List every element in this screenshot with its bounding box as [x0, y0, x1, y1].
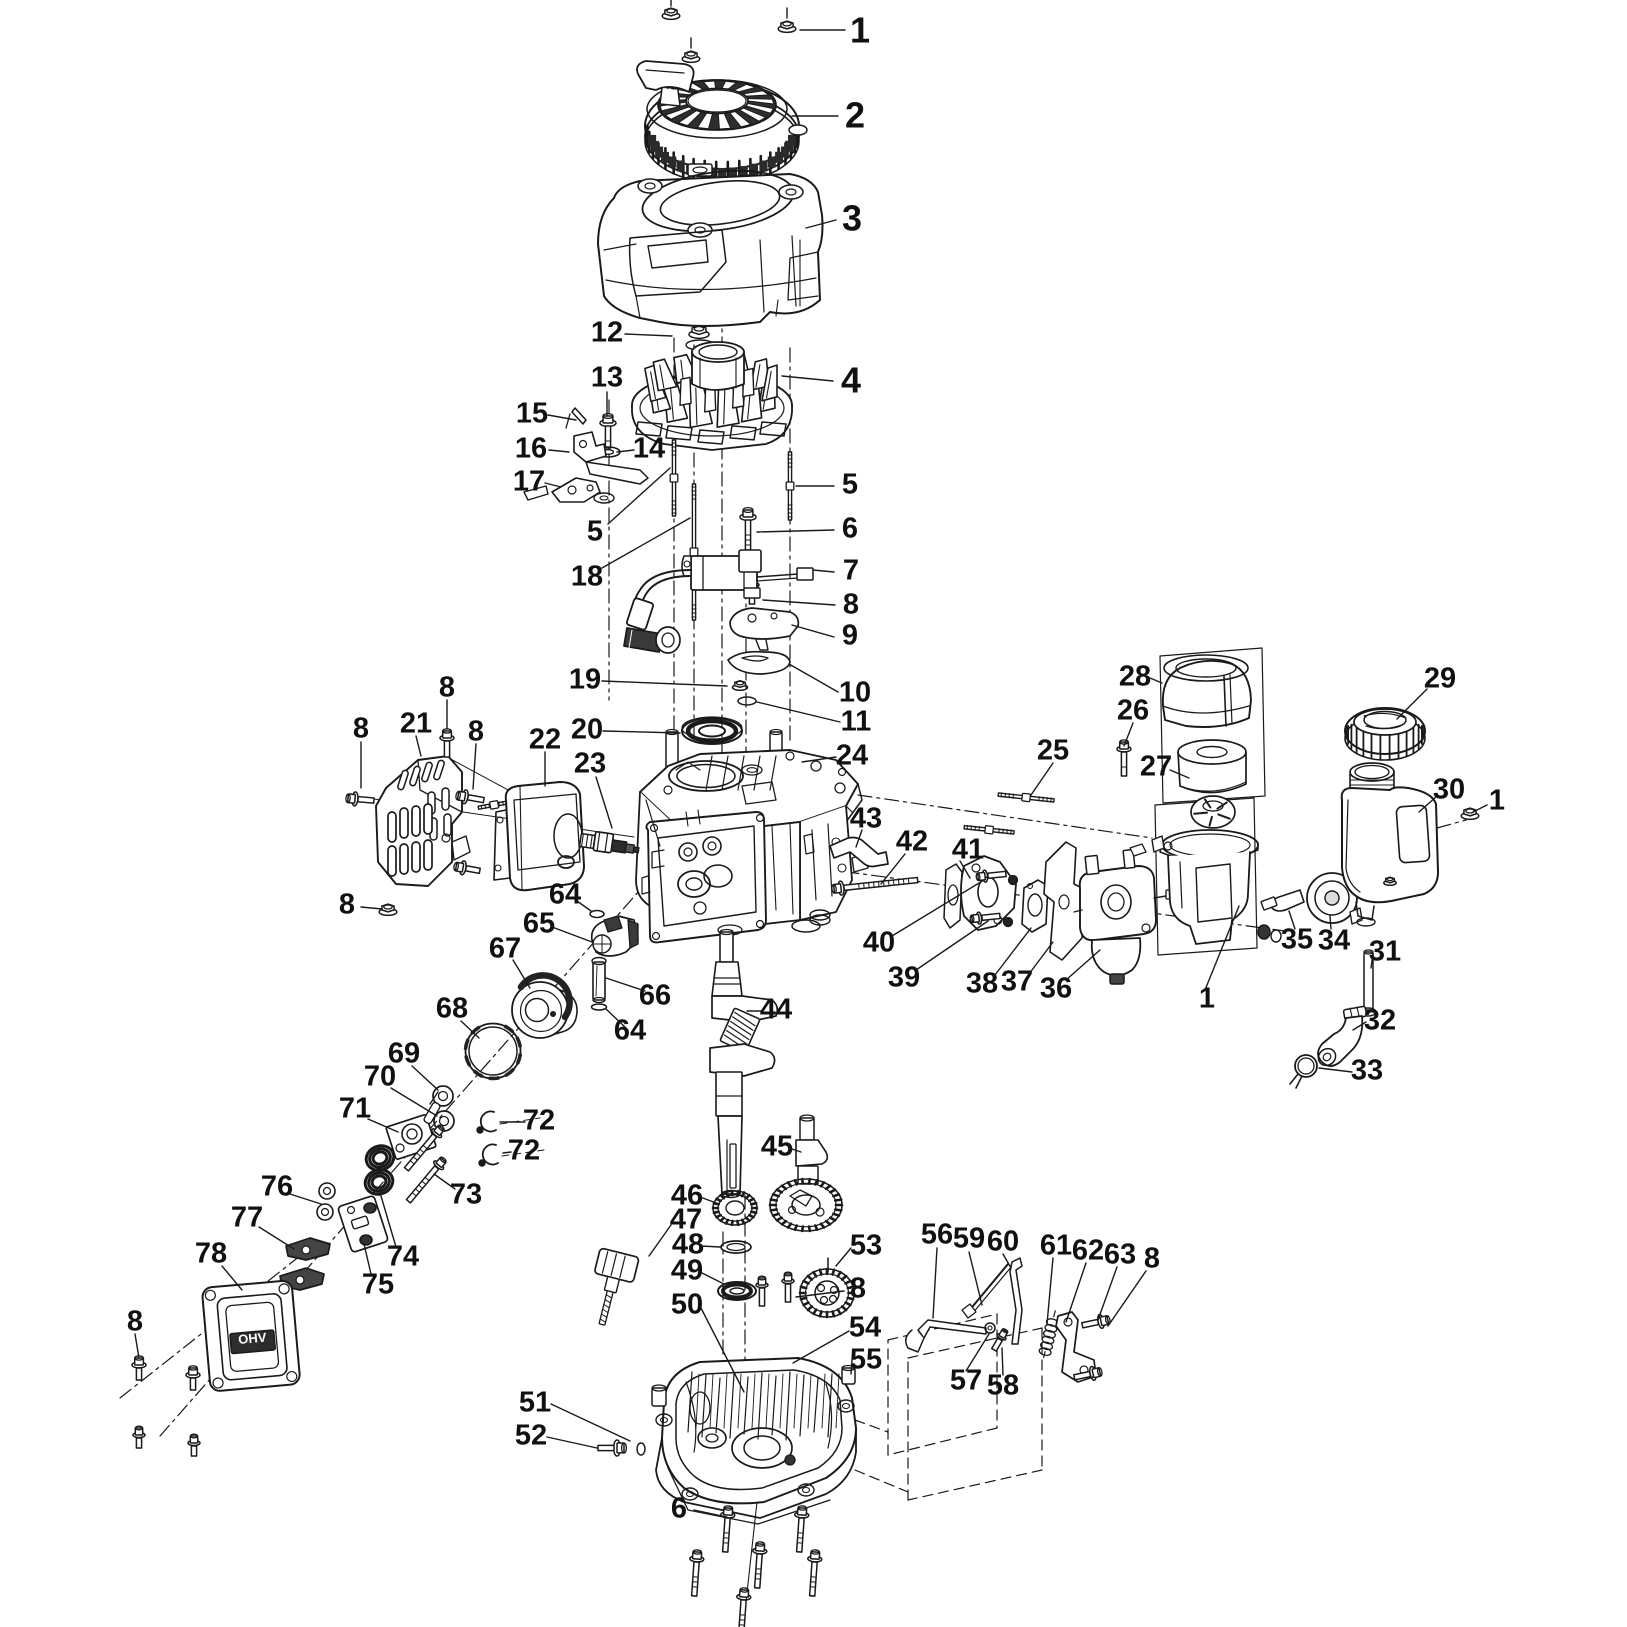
svg-text:35: 35	[1281, 924, 1313, 956]
svg-text:1: 1	[850, 10, 870, 51]
svg-text:25: 25	[1037, 735, 1069, 767]
svg-text:29: 29	[1424, 663, 1456, 695]
svg-text:26: 26	[1117, 695, 1149, 727]
svg-text:38: 38	[966, 968, 998, 1000]
svg-text:68: 68	[436, 993, 468, 1025]
svg-text:8: 8	[439, 672, 455, 704]
svg-text:5: 5	[587, 516, 603, 548]
svg-text:55: 55	[850, 1344, 882, 1376]
svg-text:9: 9	[842, 620, 858, 652]
svg-text:57: 57	[950, 1365, 982, 1397]
svg-text:30: 30	[1433, 774, 1465, 806]
svg-text:28: 28	[1119, 661, 1151, 693]
svg-text:37: 37	[1001, 966, 1033, 998]
svg-text:21: 21	[400, 708, 432, 740]
svg-text:14: 14	[633, 433, 665, 465]
svg-text:19: 19	[569, 664, 601, 696]
svg-text:13: 13	[591, 362, 623, 394]
svg-text:5: 5	[842, 469, 858, 501]
svg-text:65: 65	[523, 908, 555, 940]
svg-text:33: 33	[1351, 1055, 1383, 1087]
svg-text:72: 72	[508, 1135, 540, 1167]
svg-text:24: 24	[836, 740, 868, 772]
svg-text:51: 51	[519, 1387, 551, 1419]
svg-text:11: 11	[841, 706, 872, 738]
svg-text:71: 71	[339, 1093, 371, 1125]
svg-text:2: 2	[845, 95, 865, 136]
svg-text:7: 7	[843, 555, 859, 587]
svg-text:8: 8	[339, 889, 355, 921]
svg-text:15: 15	[516, 398, 548, 430]
svg-text:41: 41	[952, 834, 984, 866]
svg-text:17: 17	[513, 466, 545, 498]
svg-text:40: 40	[863, 927, 895, 959]
svg-text:59: 59	[953, 1223, 985, 1255]
svg-text:6: 6	[842, 513, 858, 545]
svg-text:62: 62	[1072, 1235, 1104, 1267]
svg-text:66: 66	[639, 980, 671, 1012]
svg-text:77: 77	[231, 1202, 263, 1234]
svg-text:52: 52	[515, 1420, 547, 1452]
svg-text:36: 36	[1040, 973, 1072, 1005]
svg-text:45: 45	[761, 1131, 793, 1163]
svg-text:23: 23	[574, 748, 606, 780]
svg-text:6: 6	[671, 1493, 687, 1525]
svg-text:64: 64	[549, 879, 581, 911]
svg-text:16: 16	[515, 433, 547, 465]
svg-text:76: 76	[261, 1171, 293, 1203]
svg-text:32: 32	[1364, 1005, 1396, 1037]
svg-text:8: 8	[353, 713, 369, 745]
svg-text:8: 8	[843, 589, 859, 621]
svg-text:8: 8	[850, 1273, 866, 1305]
svg-text:8: 8	[127, 1306, 143, 1338]
svg-text:1: 1	[1199, 983, 1215, 1015]
svg-text:56: 56	[921, 1219, 953, 1251]
svg-text:1: 1	[1489, 785, 1505, 817]
svg-text:34: 34	[1318, 925, 1350, 957]
svg-text:4: 4	[841, 360, 861, 401]
svg-text:44: 44	[760, 994, 792, 1026]
svg-text:39: 39	[888, 962, 920, 994]
svg-text:18: 18	[571, 561, 603, 593]
svg-text:61: 61	[1040, 1230, 1072, 1262]
svg-text:60: 60	[987, 1226, 1019, 1258]
svg-text:67: 67	[489, 933, 521, 965]
svg-text:8: 8	[1144, 1243, 1160, 1275]
svg-text:3: 3	[842, 198, 862, 239]
svg-text:OHV: OHV	[238, 1330, 268, 1347]
svg-text:54: 54	[849, 1312, 881, 1344]
svg-text:12: 12	[591, 317, 623, 349]
svg-text:31: 31	[1369, 936, 1401, 968]
svg-text:49: 49	[671, 1255, 703, 1287]
svg-text:27: 27	[1140, 751, 1172, 783]
svg-text:78: 78	[195, 1238, 227, 1270]
svg-text:63: 63	[1104, 1239, 1136, 1271]
svg-text:22: 22	[529, 724, 561, 756]
svg-text:64: 64	[614, 1015, 646, 1047]
svg-text:73: 73	[450, 1179, 482, 1211]
svg-text:10: 10	[839, 677, 871, 709]
svg-text:50: 50	[671, 1289, 703, 1321]
svg-text:8: 8	[468, 716, 484, 748]
svg-text:42: 42	[896, 826, 928, 858]
svg-text:20: 20	[571, 714, 603, 746]
svg-text:75: 75	[362, 1269, 394, 1301]
svg-text:72: 72	[523, 1105, 555, 1137]
svg-text:43: 43	[850, 803, 882, 835]
svg-text:53: 53	[850, 1230, 882, 1262]
